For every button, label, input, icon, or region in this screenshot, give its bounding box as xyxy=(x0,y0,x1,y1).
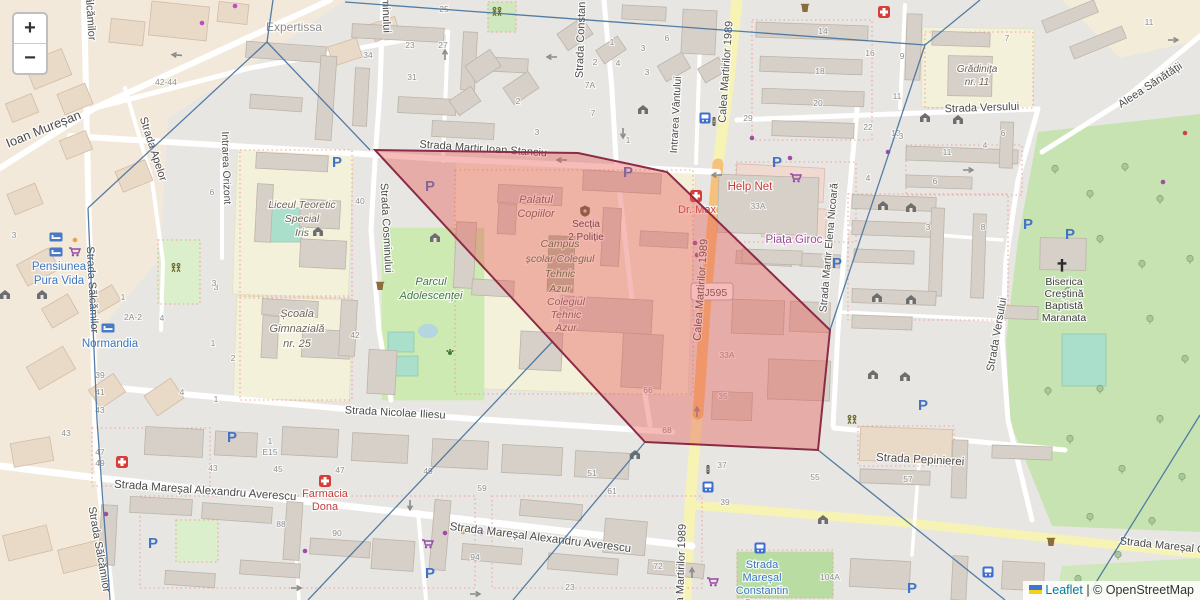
house-number: 23 xyxy=(565,582,575,592)
house-number: 88 xyxy=(276,519,286,529)
house-number: 9 xyxy=(900,51,905,61)
svg-text:P: P xyxy=(772,154,782,171)
building xyxy=(130,496,193,515)
house-number: 3 xyxy=(535,127,540,137)
dot-icon xyxy=(788,156,793,161)
building xyxy=(148,1,209,41)
svg-text:P: P xyxy=(227,429,237,446)
ukraine-flag-icon xyxy=(1029,585,1042,594)
parking-icon: P xyxy=(425,565,435,582)
house-number: 55 xyxy=(810,472,820,482)
house-number: 40 xyxy=(355,196,365,206)
building xyxy=(371,539,415,572)
house-number: 11 xyxy=(943,147,952,157)
parking-icon: P xyxy=(148,535,158,552)
house-number: 27 xyxy=(438,40,448,50)
bus-icon xyxy=(700,113,711,124)
street-label: Intrarea Orizont xyxy=(219,131,234,204)
signal-icon xyxy=(713,117,716,126)
house-number: 43 xyxy=(208,463,218,473)
building xyxy=(339,300,358,357)
house-number: 7 xyxy=(1005,33,1010,43)
house-number: 94 xyxy=(470,552,480,562)
building xyxy=(849,558,910,589)
building xyxy=(951,556,968,600)
osm-link[interactable]: © OpenStreetMap xyxy=(1093,583,1194,597)
parking-icon: P xyxy=(918,397,928,414)
house-number: 104A xyxy=(820,572,840,582)
building xyxy=(932,31,990,47)
house-number: 33A xyxy=(750,201,765,211)
house-number: 6 xyxy=(933,176,938,186)
building xyxy=(772,121,854,139)
building xyxy=(622,5,667,21)
building xyxy=(352,68,369,127)
house-number: 39 xyxy=(720,497,730,507)
attribution-separator: | xyxy=(1083,583,1093,597)
parking-icon: P xyxy=(772,154,782,171)
dot-icon xyxy=(73,238,78,243)
building xyxy=(144,427,203,458)
house-number: 7 xyxy=(591,108,596,118)
map-canvas[interactable]: PPPPPPPPPPPPDJ595 Ioan MureșanSălcămilor… xyxy=(0,0,1200,600)
svg-text:P: P xyxy=(332,154,342,171)
house-number: 2A-2 xyxy=(124,312,142,322)
house-number: 41 xyxy=(95,387,105,397)
svg-text:P: P xyxy=(425,565,435,582)
building xyxy=(281,427,338,458)
poi-label: Expertissa xyxy=(266,20,322,34)
poi-label: Normandia xyxy=(82,338,139,350)
building xyxy=(398,96,457,115)
building xyxy=(852,221,936,238)
house-number: 4 xyxy=(983,140,988,150)
dot-icon xyxy=(233,4,238,9)
house-number: 22 xyxy=(863,122,873,132)
house-number: 59 xyxy=(477,483,487,493)
house-number: 4 xyxy=(616,58,621,68)
building xyxy=(165,570,216,587)
building xyxy=(928,208,944,296)
house-number: 42-44 xyxy=(155,77,177,87)
building xyxy=(948,56,993,97)
house-number: 6 xyxy=(210,187,215,197)
house-number: 37 xyxy=(717,460,727,470)
building xyxy=(254,184,273,243)
house-number: 6 xyxy=(665,33,670,43)
landuse-c xyxy=(1062,334,1106,386)
signal-icon xyxy=(707,465,710,474)
building xyxy=(501,444,562,475)
map-viewport: PPPPPPPPPPPPDJ595 Ioan MureșanSălcămilor… xyxy=(0,0,1200,600)
landuse-y xyxy=(176,520,218,562)
house-number: 11 xyxy=(893,91,902,101)
dot-icon xyxy=(1161,180,1166,185)
landuse-y2 xyxy=(488,2,516,32)
house-number: 3 xyxy=(899,131,904,141)
house-number: 7A xyxy=(585,80,596,90)
house-number: 42 xyxy=(350,330,360,340)
house-number: 1 xyxy=(121,292,126,302)
zoom-in-button[interactable]: + xyxy=(14,14,46,44)
house-number: 47 xyxy=(335,465,345,475)
house-number: 16 xyxy=(865,48,875,58)
house-number: 1 xyxy=(610,37,615,47)
street-label: Calea Martirilor 1989 xyxy=(673,524,689,600)
house-number: 14 xyxy=(818,26,828,36)
building xyxy=(681,9,717,55)
house-number: 1 xyxy=(626,135,631,145)
east-park-area xyxy=(1006,114,1200,532)
bus-icon xyxy=(983,567,994,578)
svg-text:P: P xyxy=(1065,226,1075,243)
dot-icon xyxy=(200,21,205,26)
parking-icon: P xyxy=(1065,226,1075,243)
poi-label: Piața Giroc xyxy=(766,234,823,246)
building xyxy=(109,18,145,45)
house-number: 61 xyxy=(607,486,617,496)
parking-icon: P xyxy=(907,580,917,597)
pharmacy-icon xyxy=(116,456,128,468)
poi-label: BisericaCreștinăBaptistăMaranata xyxy=(1042,276,1087,324)
pharmacy-icon xyxy=(319,475,331,487)
parking-icon: P xyxy=(1023,216,1033,233)
house-number: 39 xyxy=(95,370,105,380)
building xyxy=(854,249,914,264)
dot-icon xyxy=(1183,131,1188,136)
building xyxy=(256,152,329,172)
house-number: 3 xyxy=(926,222,931,232)
bed-icon xyxy=(50,233,63,242)
bed-icon xyxy=(50,248,63,257)
dot-icon xyxy=(443,531,448,536)
svg-text:P: P xyxy=(918,397,928,414)
building xyxy=(351,433,408,464)
house-number: 11 xyxy=(1145,17,1154,27)
building xyxy=(852,315,912,330)
bed-icon xyxy=(102,324,115,333)
building xyxy=(852,289,936,306)
landuse-c xyxy=(388,332,414,352)
attribution: Leaflet | © OpenStreetMap xyxy=(1023,581,1200,600)
house-number: 34 xyxy=(363,50,373,60)
building xyxy=(951,440,968,498)
house-number: 29 xyxy=(743,113,753,123)
svg-text:P: P xyxy=(907,580,917,597)
dot-icon xyxy=(303,549,308,554)
house-number: 31 xyxy=(407,72,417,82)
house-number: 3 xyxy=(12,230,17,240)
house-number: 49 xyxy=(423,466,433,476)
house-number: 90 xyxy=(332,528,342,538)
building xyxy=(906,175,972,189)
house-number: 4 xyxy=(160,313,165,323)
svg-text:P: P xyxy=(148,535,158,552)
bus-icon xyxy=(755,543,766,554)
house-number: 43 xyxy=(61,428,71,438)
house-number: 8 xyxy=(981,222,986,232)
house-number: 18 xyxy=(815,66,825,76)
parking-icon: P xyxy=(227,429,237,446)
house-number: 4 xyxy=(180,387,185,397)
building xyxy=(760,56,862,75)
zoom-out-button[interactable]: − xyxy=(14,44,46,73)
building xyxy=(299,239,346,269)
house-number: 4 xyxy=(866,173,871,183)
building xyxy=(905,14,922,80)
building xyxy=(860,469,930,485)
building xyxy=(574,451,629,480)
house-number: 72 xyxy=(653,561,663,571)
dot-icon xyxy=(750,136,755,141)
house-number: 6 xyxy=(1001,128,1006,138)
leaflet-link[interactable]: Leaflet xyxy=(1045,583,1083,597)
house-number: 23 xyxy=(405,40,415,50)
svg-text:P: P xyxy=(1023,216,1033,233)
bus-icon xyxy=(703,482,714,493)
house-number: 45 xyxy=(273,464,283,474)
building xyxy=(852,195,936,212)
park-pond xyxy=(418,324,438,338)
building xyxy=(992,445,1052,460)
building xyxy=(431,439,488,470)
pharmacy-icon xyxy=(878,6,890,18)
house-number: 3 xyxy=(645,67,650,77)
house-number: 2 xyxy=(231,353,236,363)
house-number: 57 xyxy=(903,474,913,484)
poi-label: Help Net xyxy=(728,181,774,193)
house-number: 1 xyxy=(214,394,219,404)
house-number: 3 xyxy=(212,278,217,288)
zoom-control: + − xyxy=(12,12,48,75)
house-number: 20 xyxy=(813,98,823,108)
house-number: 3 xyxy=(641,43,646,53)
parking-icon: P xyxy=(332,154,342,171)
house-number: 1 xyxy=(211,338,216,348)
house-number: 2 xyxy=(516,96,521,106)
house-number: 1 xyxy=(268,436,273,446)
house-number: 2 xyxy=(593,57,598,67)
house-number: E15 xyxy=(262,447,277,457)
house-number: 51 xyxy=(587,468,597,478)
building xyxy=(432,120,495,139)
building xyxy=(367,349,397,394)
